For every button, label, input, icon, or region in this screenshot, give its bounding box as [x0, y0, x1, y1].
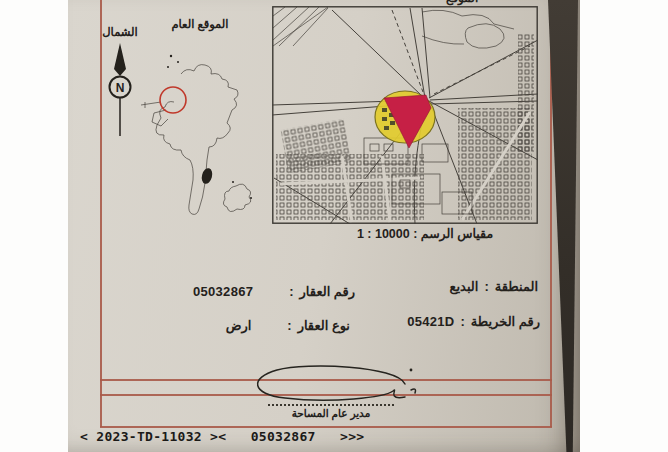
field-separator: : [287, 318, 291, 333]
field-map-number-value: 05421D [407, 314, 454, 329]
field-separator: : [289, 284, 293, 299]
field-separator: : [461, 314, 465, 329]
field-map-number: رقم الخريطة : 05421D [407, 314, 540, 329]
field-parcel-type: نوع العقار : ارض [226, 318, 350, 333]
field-parcel-number-value: 05032867 [193, 284, 253, 299]
field-map-number-label: رقم الخريطة [471, 314, 540, 329]
frame-bottom-border [100, 426, 552, 428]
signature-dotted-line [268, 390, 394, 406]
field-region-label: المنطقة [495, 279, 538, 294]
map-scale-label: مقياس الرسم : 10000 : 1 [350, 226, 500, 241]
field-separator: : [484, 279, 488, 294]
detail-map-clipped-title: الموقع [446, 0, 478, 5]
field-parcel-type-label: نوع العقار [298, 318, 350, 333]
field-parcel-type-value: ارض [226, 318, 252, 333]
field-region-value: البديع [450, 279, 479, 294]
field-parcel-number: رقم العقار : 05032867 [193, 284, 355, 299]
cadastral-map [272, 6, 538, 224]
plot-marker [375, 91, 435, 148]
signature-title: مدير عام المساحة [266, 407, 396, 419]
overview-map-title: الموقع العام [158, 17, 242, 31]
bahrain-outline-map [133, 36, 265, 238]
location-circle-icon [160, 87, 186, 113]
field-parcel-number-label: رقم العقار [300, 284, 355, 299]
compass-n-letter: N [116, 81, 125, 95]
machine-readable-line: < 2023-TD-11032 >< 05032867 >>> [80, 429, 364, 444]
field-region: المنطقة : البديع [450, 279, 538, 294]
photo-canvas: الشمال N الموقع العام الموقع [0, 0, 668, 452]
